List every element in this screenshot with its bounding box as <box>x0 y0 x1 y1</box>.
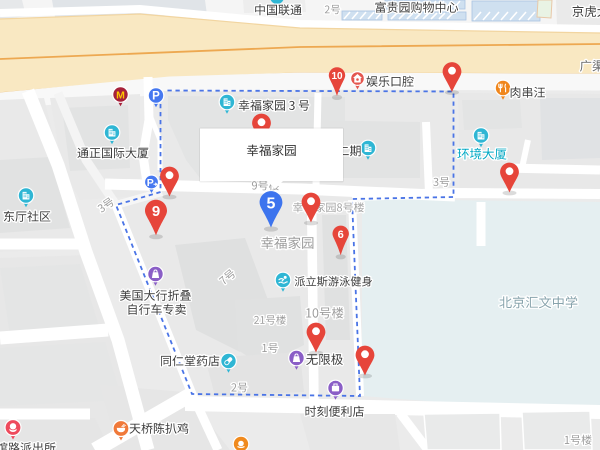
svg-text:P: P <box>152 91 160 103</box>
svg-text:P: P <box>147 177 154 189</box>
svg-text:9: 9 <box>152 203 160 220</box>
svg-text:10: 10 <box>331 71 343 82</box>
svg-text:5: 5 <box>267 195 276 212</box>
svg-text:6: 6 <box>338 229 344 241</box>
svg-text:M: M <box>116 90 125 102</box>
